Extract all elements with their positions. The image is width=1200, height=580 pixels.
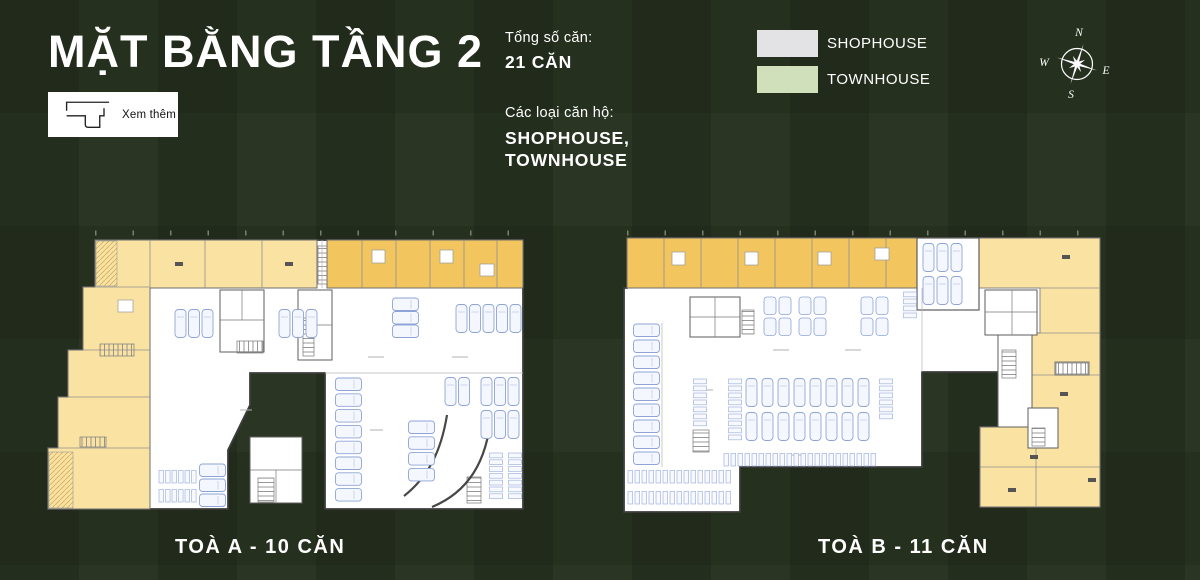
parking-stall <box>731 454 736 467</box>
parking-stall <box>762 379 773 407</box>
floorplan-page: { "header": { "title": "MẶT BẰNG TẦNG 2"… <box>0 0 1200 580</box>
parking-stall <box>481 378 492 406</box>
compass-s: S <box>1068 89 1074 101</box>
tower-b-caption: TOÀ B - 11 CĂN <box>818 536 989 559</box>
shophouse-swatch <box>757 30 818 57</box>
parking-stall <box>409 437 435 450</box>
parking-stall <box>729 386 742 391</box>
parking-stall <box>814 297 826 315</box>
parking-stall <box>836 454 841 467</box>
parking-stall <box>719 471 724 484</box>
parking-stall <box>192 490 197 503</box>
parking-stall <box>694 386 707 391</box>
compass-e: E <box>1101 65 1109 77</box>
parking-stall <box>746 379 757 407</box>
parking-stall <box>490 480 503 485</box>
parking-stall <box>738 454 743 467</box>
total-units-label: Tổng số căn: <box>505 30 630 46</box>
total-units-value: 21 CĂN <box>505 52 630 73</box>
parking-stall <box>694 421 707 426</box>
parking-stall <box>279 310 290 338</box>
parking-stall <box>635 492 640 505</box>
parking-stall <box>876 297 888 315</box>
parking-stall <box>677 471 682 484</box>
parking-stall <box>729 435 742 440</box>
parking-stall <box>876 318 888 336</box>
parking-stall <box>656 471 661 484</box>
parking-stall <box>634 452 660 465</box>
parking-stall <box>172 471 177 484</box>
unit-types-label: Các loại căn hộ: <box>505 105 630 121</box>
shophouse-label: SHOPHOUSE <box>827 35 927 52</box>
parking-stall <box>810 413 821 441</box>
parking-stall <box>509 453 522 458</box>
parking-stall <box>880 393 893 398</box>
parking-stall <box>759 454 764 467</box>
parking-stall <box>794 413 805 441</box>
parking-stall <box>663 492 668 505</box>
parking-stall <box>779 297 791 315</box>
parking-stall <box>634 356 660 369</box>
parking-stall <box>712 471 717 484</box>
parking-stall <box>159 471 164 484</box>
parking-stall <box>175 310 186 338</box>
unit-type-townhouse: TOWNHOUSE <box>505 149 630 171</box>
parking-stall <box>694 407 707 412</box>
compass-n: N <box>1074 27 1084 39</box>
parking-stall <box>712 492 717 505</box>
parking-stall <box>663 471 668 484</box>
townhouse-swatch <box>757 66 818 93</box>
parking-stall <box>336 441 362 454</box>
parking-stall <box>508 378 519 406</box>
parking-stall <box>677 492 682 505</box>
unit-type-shophouse: SHOPHOUSE, <box>505 127 630 149</box>
parking-stall <box>172 490 177 503</box>
units-gold-b <box>627 238 917 288</box>
parking-stall <box>634 420 660 433</box>
parking-stall <box>764 297 776 315</box>
parking-stall <box>459 378 470 406</box>
parking-stall <box>764 318 776 336</box>
parking-stall <box>483 305 494 333</box>
parking-stall <box>857 454 862 467</box>
parking-stall <box>826 413 837 441</box>
parking-stall <box>842 413 853 441</box>
legend-item-townhouse: TOWNHOUSE <box>757 66 930 93</box>
parking-stall <box>904 292 917 297</box>
parking-stall <box>642 492 647 505</box>
parking-stall <box>445 378 456 406</box>
parking-stall <box>923 277 934 305</box>
parking-stall <box>336 473 362 486</box>
parking-stall <box>336 457 362 470</box>
parking-stall <box>200 464 226 477</box>
parking-stall <box>729 421 742 426</box>
parking-stall <box>729 379 742 384</box>
parking-stall <box>456 305 467 333</box>
parking-stall <box>858 379 869 407</box>
parking-stall <box>490 487 503 492</box>
parking-stall <box>729 414 742 419</box>
parking-stall <box>904 313 917 318</box>
parking-stall <box>724 454 729 467</box>
parking-stall <box>861 318 873 336</box>
parking-stall <box>752 454 757 467</box>
parking-stall <box>745 454 750 467</box>
parking-stall <box>189 310 200 338</box>
parking-stall <box>495 411 506 439</box>
floorplan-icon <box>61 98 113 132</box>
parking-stall <box>509 480 522 485</box>
see-more-button[interactable]: Xem thêm <box>48 92 178 137</box>
parking-stall <box>628 471 633 484</box>
legend: SHOPHOUSE TOWNHOUSE <box>757 30 930 102</box>
parking-stall <box>829 454 834 467</box>
parking-stall <box>880 386 893 391</box>
parking-stall <box>923 244 934 272</box>
parking-stall <box>684 492 689 505</box>
parking-stall <box>497 305 508 333</box>
parking-stall <box>729 407 742 412</box>
parking-stall <box>871 454 876 467</box>
parking-stall <box>858 413 869 441</box>
parking-stall <box>634 340 660 353</box>
parking-stall <box>200 494 226 507</box>
parking-stall <box>726 492 731 505</box>
parking-stall <box>694 400 707 405</box>
parking-stall <box>780 454 785 467</box>
parking-stall <box>509 467 522 472</box>
parking-stall <box>810 379 821 407</box>
parking-stall <box>694 393 707 398</box>
parking-stall <box>691 471 696 484</box>
parking-stall <box>481 411 492 439</box>
parking-stall <box>799 297 811 315</box>
parking-stall <box>729 428 742 433</box>
parking-stall <box>634 404 660 417</box>
parking-stall <box>880 414 893 419</box>
parking-stall <box>773 454 778 467</box>
parking-stall <box>159 490 164 503</box>
parking-stall <box>393 325 419 338</box>
parking-stall <box>746 413 757 441</box>
parking-stall <box>409 421 435 434</box>
parking-stall <box>634 436 660 449</box>
parking-stall <box>843 454 848 467</box>
parking-stall <box>490 473 503 478</box>
parking-stall <box>694 379 707 384</box>
parking-stall <box>861 297 873 315</box>
parking-stall <box>698 471 703 484</box>
parking-stall <box>794 454 799 467</box>
parking-stall <box>951 277 962 305</box>
parking-stall <box>642 471 647 484</box>
parking-stall <box>684 471 689 484</box>
compass-rose-icon: N E S W <box>1018 18 1138 114</box>
tower-a-caption: TOÀ A - 10 CĂN <box>175 536 345 559</box>
parking-stall <box>937 244 948 272</box>
parking-stall <box>509 487 522 492</box>
parking-stall <box>202 310 213 338</box>
parking-stall <box>635 471 640 484</box>
parking-stall <box>179 471 184 484</box>
parking-stall <box>649 471 654 484</box>
parking-stall <box>293 310 304 338</box>
parking-stall <box>880 379 893 384</box>
parking-stall <box>336 489 362 502</box>
parking-stall <box>490 467 503 472</box>
parking-stall <box>490 494 503 499</box>
parking-stall <box>726 471 731 484</box>
parking-stall <box>470 305 481 333</box>
parking-stall <box>509 494 522 499</box>
parking-stall <box>336 410 362 423</box>
parking-stall <box>166 471 171 484</box>
floorplan-tower-a <box>40 228 585 520</box>
parking-stall <box>336 425 362 438</box>
parking-stall <box>904 299 917 304</box>
parking-stall <box>826 379 837 407</box>
parking-stall <box>779 318 791 336</box>
parking-stall <box>409 453 435 466</box>
parking-stall <box>801 454 806 467</box>
parking-stall <box>778 379 789 407</box>
parking-stall <box>508 411 519 439</box>
parking-stall <box>336 394 362 407</box>
parking-stall <box>490 460 503 465</box>
parking-stall <box>628 492 633 505</box>
parking-stall <box>787 454 792 467</box>
parking-stall <box>719 492 724 505</box>
page-title: MẶT BẰNG TẦNG 2 <box>48 26 483 78</box>
parking-stall <box>490 453 503 458</box>
parking-stall <box>185 471 190 484</box>
parking-stall <box>799 318 811 336</box>
parking-stall <box>509 460 522 465</box>
parking-stall <box>814 318 826 336</box>
parking-stall <box>179 490 184 503</box>
parking-stall <box>634 324 660 337</box>
parking-stall <box>409 468 435 481</box>
parking-stall <box>185 490 190 503</box>
parking-stall <box>649 492 654 505</box>
parking-stall <box>822 454 827 467</box>
parking-stall <box>808 454 813 467</box>
compass-w: W <box>1039 57 1050 69</box>
parking-stall <box>794 379 805 407</box>
parking-stall <box>166 490 171 503</box>
parking-stall <box>937 277 948 305</box>
parking-stall <box>766 454 771 467</box>
see-more-label: Xem thêm <box>122 109 176 121</box>
parking-stall <box>336 378 362 391</box>
parking-stall <box>705 492 710 505</box>
parking-stall <box>729 393 742 398</box>
parking-stall <box>762 413 773 441</box>
parking-stall <box>495 378 506 406</box>
parking-stall <box>880 400 893 405</box>
parking-stall <box>698 492 703 505</box>
stats-panel: Tổng số căn: 21 CĂN Các loại căn hộ: SHO… <box>505 30 630 171</box>
parking-stall <box>670 471 675 484</box>
parking-stall <box>729 400 742 405</box>
parking-stall <box>634 372 660 385</box>
parking-stall <box>705 471 710 484</box>
floorplan-tower-b <box>608 228 1108 520</box>
parking-stall <box>656 492 661 505</box>
parking-stall <box>200 479 226 492</box>
legend-item-shophouse: SHOPHOUSE <box>757 30 930 57</box>
parking-stall <box>850 454 855 467</box>
parking-stall <box>393 298 419 311</box>
parking-stall <box>842 379 853 407</box>
parking-stall <box>192 471 197 484</box>
parking-stall <box>951 244 962 272</box>
parking-stall <box>815 454 820 467</box>
parking-stall <box>306 310 317 338</box>
parking-stall <box>864 454 869 467</box>
parking-stall <box>510 305 521 333</box>
parking-stall <box>670 492 675 505</box>
townhouse-label: TOWNHOUSE <box>827 71 930 88</box>
parking-stall <box>634 388 660 401</box>
parking-stall <box>880 407 893 412</box>
parking-stall <box>778 413 789 441</box>
parking-stall <box>509 473 522 478</box>
parking-stall <box>904 306 917 311</box>
parking-stall <box>691 492 696 505</box>
parking-stall <box>393 312 419 325</box>
parking-stall <box>694 414 707 419</box>
